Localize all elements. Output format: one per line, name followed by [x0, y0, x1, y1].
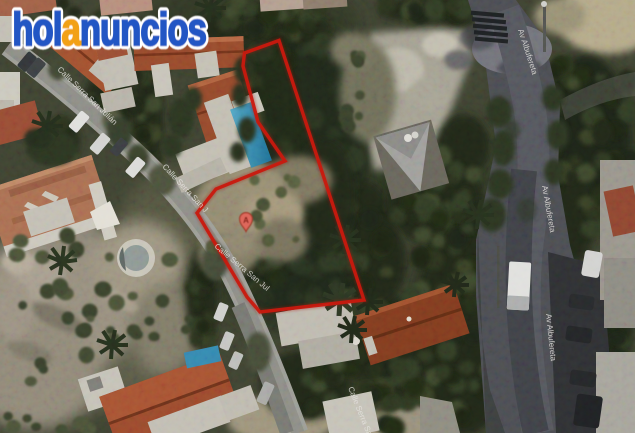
svg-text:holanuncios: holanuncios: [13, 3, 207, 55]
svg-text:A: A: [243, 216, 249, 225]
